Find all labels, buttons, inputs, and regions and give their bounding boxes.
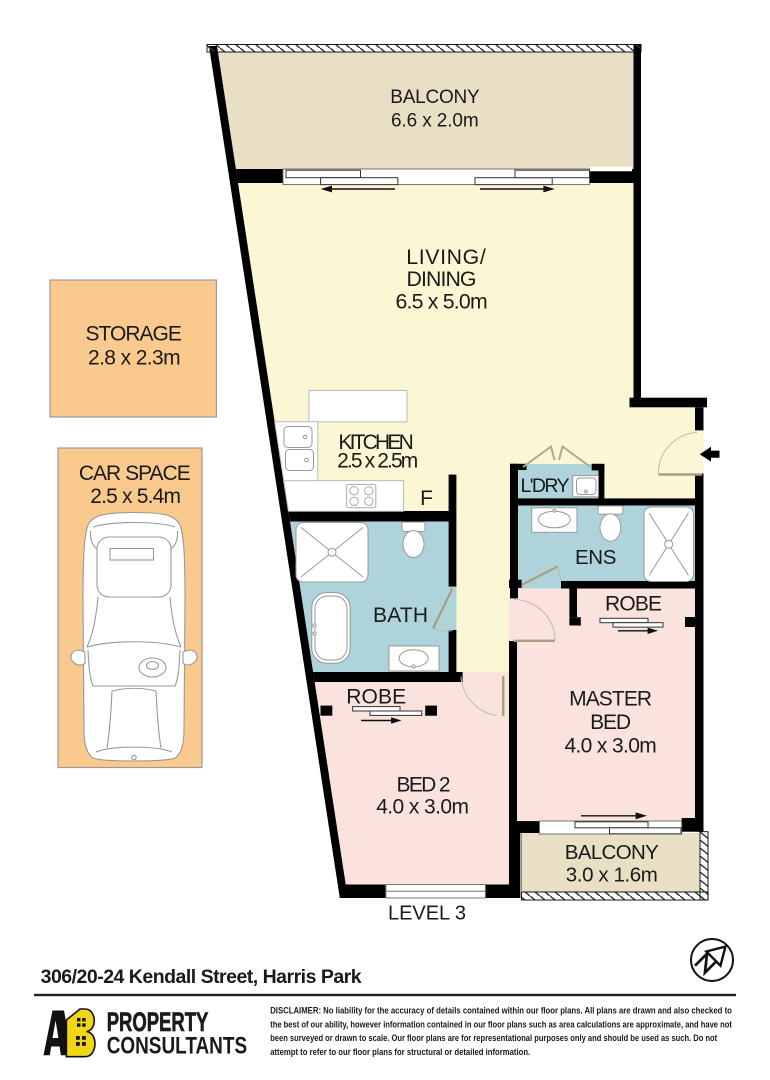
svg-text:DISCLAIMER: No liability for t: DISCLAIMER: No liability for the accurac… [270, 1006, 732, 1016]
svg-text:the best of our ability, howev: the best of our ability, however informa… [270, 1019, 732, 1029]
svg-text:6.5 x 5.0m: 6.5 x 5.0m [396, 290, 488, 314]
svg-text:3.0 x 1.6m: 3.0 x 1.6m [566, 864, 658, 887]
svg-text:attempt to refer to our floor: attempt to refer to our floor plans for … [270, 1047, 530, 1057]
svg-text:L'DRY: L'DRY [521, 475, 570, 497]
svg-text:2.5 x 2.5m: 2.5 x 2.5m [337, 450, 418, 473]
svg-text:F: F [420, 487, 433, 510]
svg-text:been surveyed or drawn to scal: been surveyed or drawn to scale. Our flo… [270, 1033, 717, 1043]
svg-text:CAR SPACE: CAR SPACE [79, 462, 191, 485]
svg-text:4.0 x 3.0m: 4.0 x 3.0m [564, 734, 656, 757]
svg-text:2.8 x 2.3m: 2.8 x 2.3m [88, 347, 181, 370]
svg-text:BED: BED [590, 711, 631, 734]
svg-text:LIVING/: LIVING/ [406, 245, 486, 269]
svg-text:ENS: ENS [575, 546, 616, 569]
svg-text:STORAGE: STORAGE [86, 322, 182, 345]
svg-text:MASTER: MASTER [569, 688, 652, 711]
svg-text:4.0 x 3.0m: 4.0 x 3.0m [376, 796, 469, 819]
svg-text:ROBE: ROBE [605, 593, 662, 616]
svg-text:BATH: BATH [373, 604, 428, 627]
svg-text:306/20-24 Kendall Street, Harr: 306/20-24 Kendall Street, Harris Park [41, 966, 362, 988]
svg-text:BALCONY: BALCONY [390, 87, 480, 108]
svg-text:LEVEL 3: LEVEL 3 [388, 903, 466, 925]
svg-text:ROBE: ROBE [346, 686, 406, 709]
svg-text:BED 2: BED 2 [397, 774, 451, 797]
svg-text:DINING: DINING [407, 267, 477, 291]
svg-text:CONSULTANTS: CONSULTANTS [107, 1033, 247, 1060]
svg-text:BALCONY: BALCONY [565, 841, 659, 864]
svg-text:6.6 x 2.0m: 6.6 x 2.0m [391, 111, 479, 132]
svg-text:2.5 x 5.4m: 2.5 x 5.4m [90, 485, 181, 508]
